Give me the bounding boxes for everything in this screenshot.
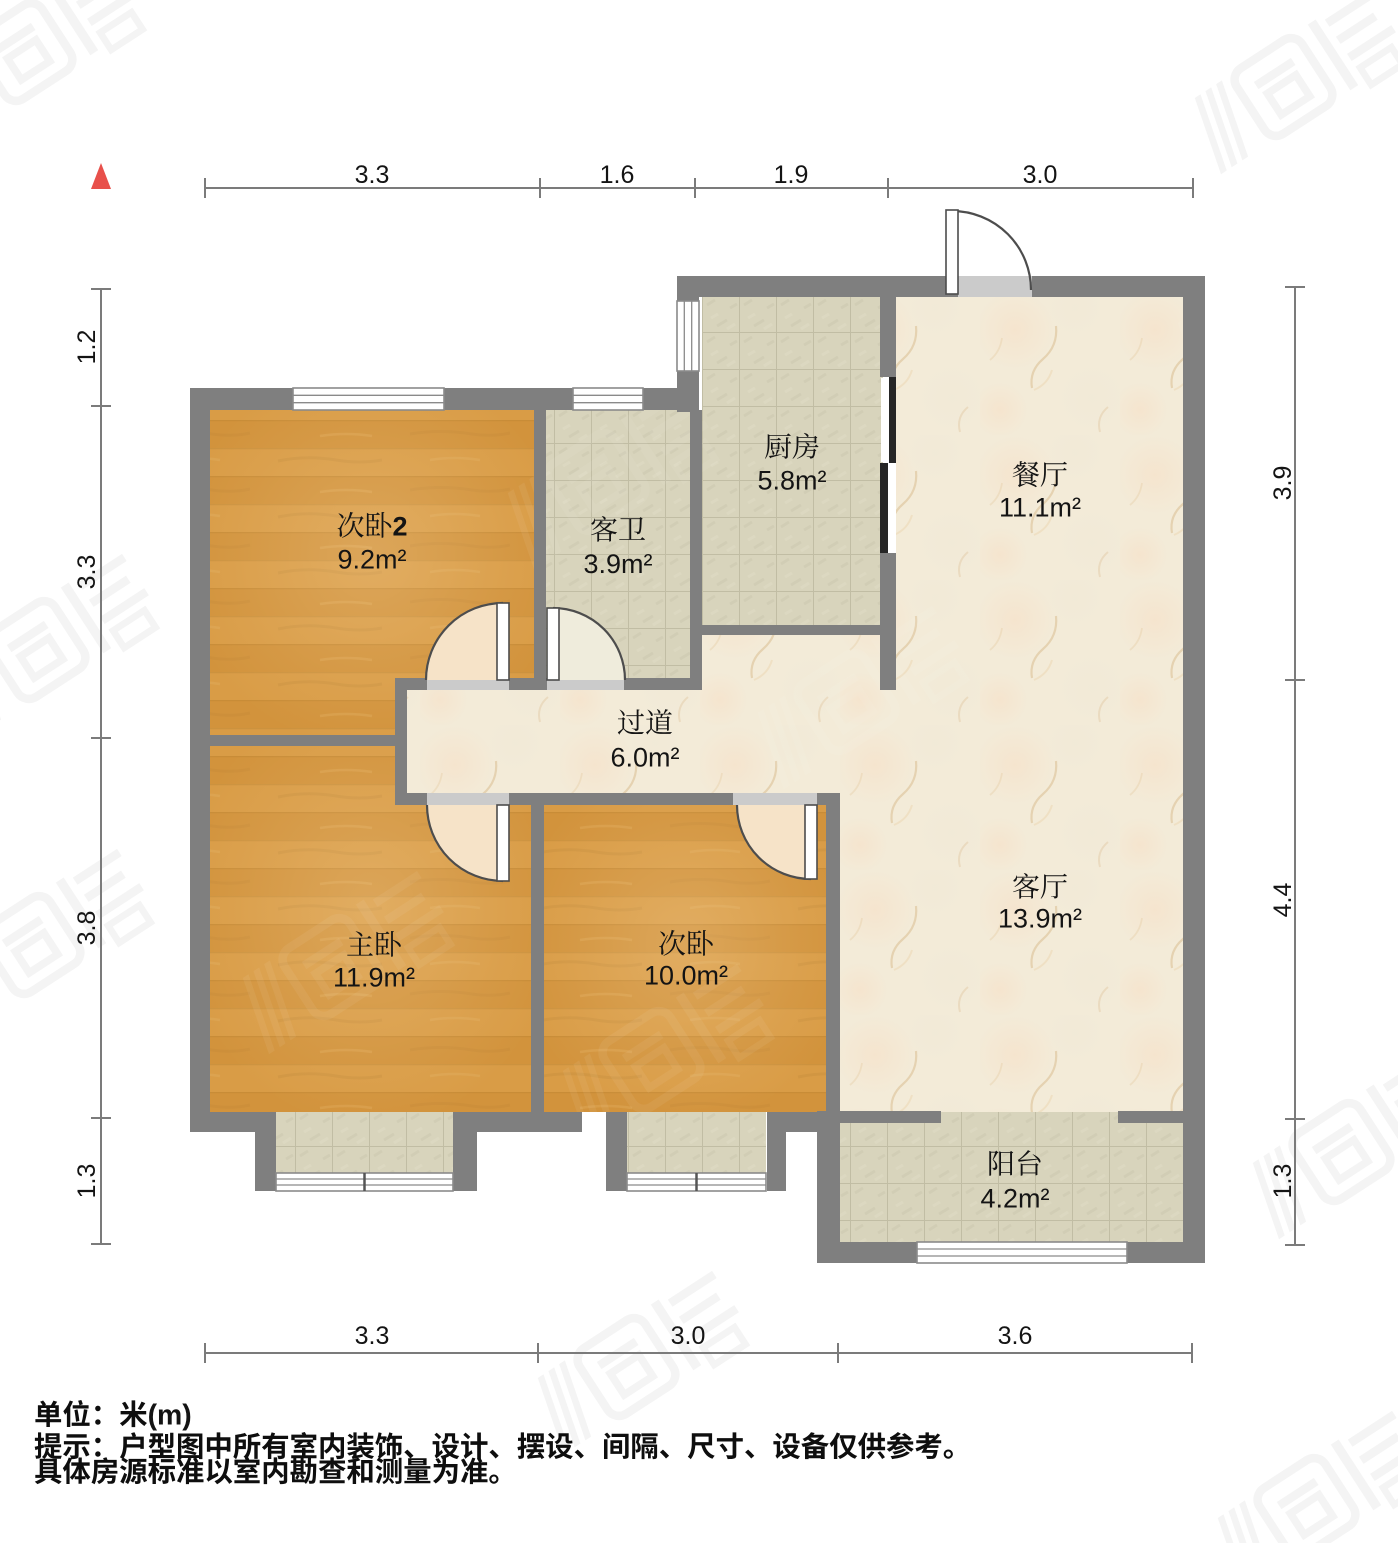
svg-text:1.9: 1.9: [774, 161, 809, 189]
svg-text:1.3: 1.3: [1269, 1164, 1297, 1199]
svg-text:1.6: 1.6: [600, 161, 635, 189]
svg-text:9.2m²: 9.2m²: [337, 545, 406, 575]
svg-text:10.0m²: 10.0m²: [644, 961, 728, 991]
svg-text:3.9m²: 3.9m²: [583, 549, 652, 579]
svg-text:3.6: 3.6: [998, 1322, 1033, 1350]
svg-text:4.4: 4.4: [1269, 883, 1297, 918]
svg-text:6.0m²: 6.0m²: [610, 743, 679, 773]
svg-text:5.8m²: 5.8m²: [757, 466, 826, 496]
svg-text:3.0: 3.0: [1023, 161, 1058, 189]
svg-text:4.2m²: 4.2m²: [980, 1184, 1049, 1214]
svg-text:2: 2: [393, 512, 408, 542]
svg-text:1.3: 1.3: [73, 1164, 101, 1199]
svg-text:3.9: 3.9: [1269, 466, 1297, 501]
svg-text:11.9m²: 11.9m²: [333, 963, 415, 993]
svg-text:(m): (m): [148, 1400, 192, 1432]
svg-text:13.9m²: 13.9m²: [998, 904, 1082, 934]
svg-text:11.1m²: 11.1m²: [999, 493, 1081, 523]
svg-text:3.8: 3.8: [73, 911, 101, 946]
svg-text:3.3: 3.3: [355, 161, 390, 189]
svg-text:3.0: 3.0: [671, 1322, 706, 1350]
svg-text:3.3: 3.3: [73, 555, 101, 590]
svg-text:1.2: 1.2: [73, 330, 101, 365]
svg-text:3.3: 3.3: [355, 1322, 390, 1350]
